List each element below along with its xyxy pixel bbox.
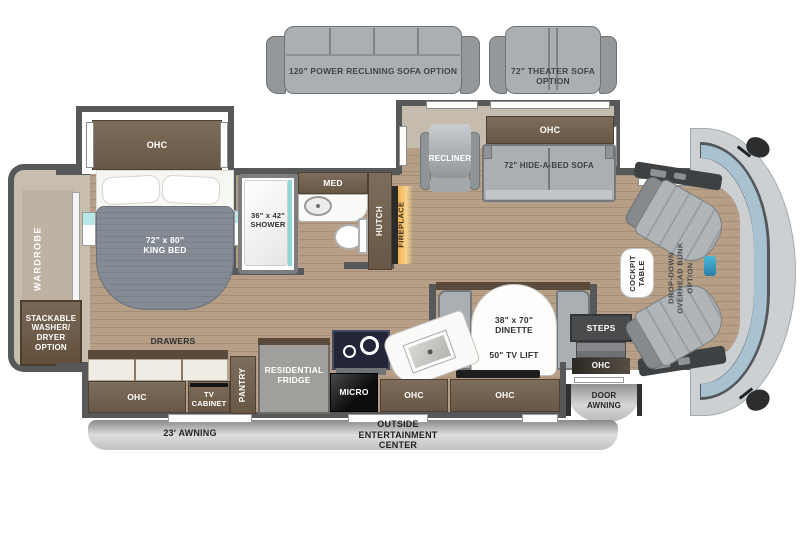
wardrobe-label: WARDROBE bbox=[32, 227, 43, 292]
washer-dryer-option: STACKABLE WASHER/ DRYER OPTION bbox=[20, 300, 82, 366]
window bbox=[399, 126, 407, 166]
recliner-label: RECLINER bbox=[418, 152, 482, 166]
window bbox=[426, 101, 478, 109]
bunk-option-label: DROP-DOWN OVERHEAD BUNK OPTION bbox=[667, 242, 695, 313]
recliner-seat bbox=[430, 178, 470, 192]
toilet-tank bbox=[358, 218, 368, 254]
tv-lift-label: 50" TV LIFT bbox=[471, 348, 557, 362]
theater-sofa-label: 72" THEATER SOFA OPTION bbox=[507, 62, 599, 90]
dresser-divider bbox=[134, 359, 136, 381]
fridge-label: RESIDENTIAL FRIDGE bbox=[258, 360, 330, 390]
kitchen-ohc-right-label: OHC bbox=[450, 379, 560, 412]
cockpit-console bbox=[704, 256, 716, 276]
awning-label: 23' AWNING bbox=[130, 426, 250, 440]
bed-pillow bbox=[101, 175, 160, 206]
tv-lift-unit bbox=[456, 370, 540, 378]
sofa-armrest bbox=[266, 36, 286, 94]
king-bed-label: 72" x 80" KING BED bbox=[96, 230, 234, 260]
door-awning-label: DOOR AWNING bbox=[566, 388, 642, 414]
bath-sink-drain bbox=[316, 204, 320, 208]
sofa-armrest bbox=[460, 36, 480, 94]
kitchen-ohc-mid-label: OHC bbox=[380, 379, 448, 412]
slide-skirt bbox=[522, 414, 558, 423]
cooktop-burner bbox=[343, 345, 356, 358]
power-reclining-sofa-option: 120" POWER RECLINING SOFA OPTION bbox=[266, 26, 480, 96]
sofa-back-seam bbox=[286, 54, 460, 56]
entry-ohc-label: OHC bbox=[572, 358, 630, 374]
tv-cabinet-label: TV CABINET bbox=[188, 387, 230, 411]
sofa-cushion-divider bbox=[373, 28, 375, 54]
fridge-top-trim bbox=[258, 338, 330, 345]
cooktop-burner bbox=[360, 336, 379, 355]
door-threshold bbox=[574, 377, 624, 383]
drawers-label: DRAWERS bbox=[118, 334, 228, 348]
sofa-bracket bbox=[483, 145, 492, 159]
bed-slide-post bbox=[86, 122, 94, 168]
dresser-back bbox=[88, 350, 228, 359]
window bbox=[490, 101, 610, 109]
sofa-cushion-divider bbox=[417, 28, 419, 54]
sofa-armrest bbox=[599, 36, 617, 94]
sofa-cushion-divider bbox=[329, 28, 331, 54]
hutch-label: HUTCH bbox=[375, 206, 385, 236]
kitchen-ohc-left-label: OHC bbox=[88, 381, 186, 413]
dinette-label: 38" x 70" DINETTE bbox=[471, 312, 557, 338]
sofa-front-band bbox=[486, 190, 612, 199]
med-label: MED bbox=[298, 172, 368, 194]
bunk-option-area: DROP-DOWN OVERHEAD BUNK OPTION bbox=[656, 224, 706, 332]
hide-a-bed-label: 72" HIDE-A-BED SOFA bbox=[482, 158, 616, 174]
rv-floorplan-canvas: 120" POWER RECLINING SOFA OPTION 72" THE… bbox=[0, 0, 800, 545]
cockpit-table-label: COCKPIT TABLE bbox=[628, 255, 647, 292]
bedroom-ohc-label: OHC bbox=[92, 120, 222, 170]
dash-vent bbox=[674, 172, 687, 180]
microwave-label: MICRO bbox=[330, 373, 378, 412]
nightstand-top bbox=[83, 213, 95, 225]
pantry-area: PANTRY bbox=[230, 356, 256, 414]
dresser-divider bbox=[181, 359, 183, 381]
cockpit-table-area: COCKPIT TABLE bbox=[620, 248, 654, 298]
fireplace-area: FIREPLACE bbox=[388, 186, 414, 264]
step-treads bbox=[576, 342, 626, 358]
shower-label: 36" x 42" SHOWER bbox=[240, 202, 296, 238]
living-ohc-label: OHC bbox=[486, 116, 614, 144]
bed-slide-post bbox=[220, 122, 228, 168]
outside-entertainment-label: OUTSIDE ENTERTAINMENT CENTER bbox=[330, 413, 466, 457]
theater-sofa-option: 72" THEATER SOFA OPTION bbox=[489, 26, 617, 96]
fireplace-label: FIREPLACE bbox=[396, 202, 405, 248]
sofa-bracket bbox=[605, 145, 614, 159]
power-sofa-label: 120" POWER RECLINING SOFA OPTION bbox=[286, 58, 460, 84]
bed-pillow bbox=[161, 175, 220, 206]
pantry-label: PANTRY bbox=[238, 368, 248, 402]
dresser-countertop bbox=[88, 359, 228, 381]
slide-skirt bbox=[168, 414, 252, 423]
